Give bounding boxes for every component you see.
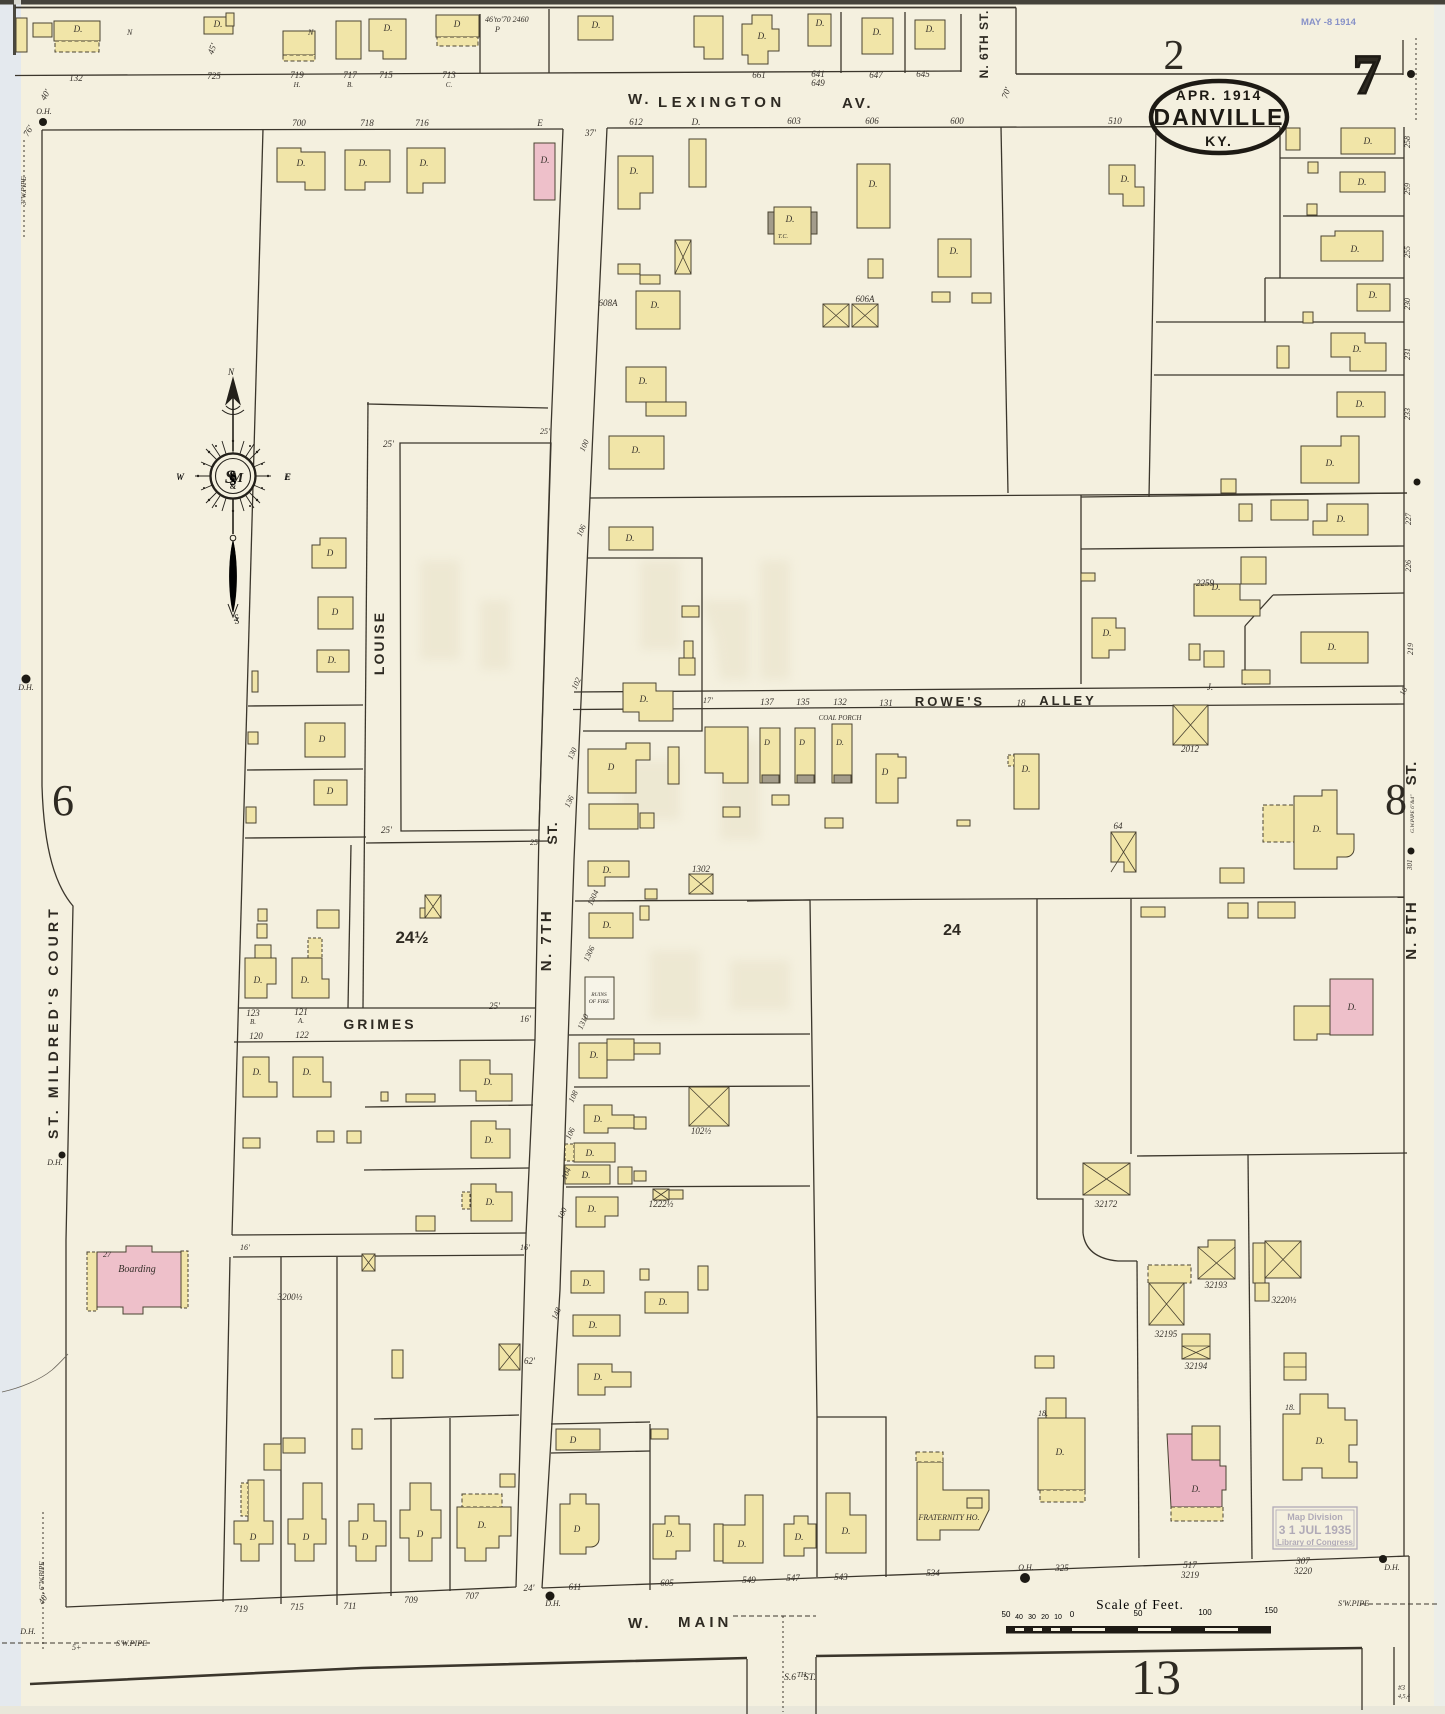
svg-text:D.: D. — [841, 1526, 851, 1536]
svg-text:MAIN: MAIN — [678, 1614, 732, 1631]
svg-text:J.: J. — [1207, 682, 1213, 692]
svg-text:1222½: 1222½ — [649, 1199, 674, 1209]
svg-text:P: P — [494, 25, 500, 34]
svg-text:D.: D. — [485, 1197, 495, 1207]
svg-text:D.: D. — [835, 738, 844, 747]
svg-text:D.: D. — [794, 1532, 804, 1542]
svg-text:D.: D. — [477, 1520, 487, 1530]
svg-text:16': 16' — [520, 1243, 530, 1252]
svg-text:17': 17' — [703, 696, 713, 705]
svg-text:D: D — [331, 607, 339, 617]
svg-text:D.: D. — [1055, 1447, 1065, 1457]
svg-text:D.: D. — [593, 1372, 603, 1382]
svg-text:517: 517 — [1183, 1560, 1197, 1570]
svg-text:62': 62' — [524, 1356, 536, 1366]
svg-text:510: 510 — [1108, 116, 1122, 126]
svg-text:D.: D. — [925, 24, 935, 34]
svg-text:18: 18 — [1017, 698, 1027, 708]
svg-text:A.: A. — [297, 1017, 304, 1025]
svg-text:D.: D. — [625, 533, 635, 543]
svg-text:661: 661 — [752, 70, 766, 80]
svg-text:25': 25' — [489, 1001, 501, 1011]
svg-text:S.6: S.6 — [784, 1673, 796, 1683]
svg-text:612: 612 — [629, 117, 643, 127]
svg-text:25': 25' — [381, 825, 393, 835]
svg-text:102½: 102½ — [691, 1126, 712, 1136]
svg-text:ALLEY: ALLEY — [1039, 693, 1097, 708]
svg-text:ROWE'S: ROWE'S — [915, 694, 985, 709]
svg-text:4,5,4: 4,5,4 — [1398, 1693, 1410, 1700]
svg-text:W.: W. — [628, 91, 652, 108]
svg-text:B.: B. — [250, 1018, 256, 1026]
svg-text:231: 231 — [1403, 348, 1412, 360]
svg-text:D: D — [607, 762, 615, 772]
svg-text:16': 16' — [240, 1243, 250, 1252]
svg-text:D.: D. — [253, 975, 263, 985]
svg-text:10: 10 — [1054, 1614, 1062, 1621]
svg-text:549: 549 — [742, 1575, 756, 1585]
svg-text:D.: D. — [1350, 244, 1360, 254]
svg-text:D.: D. — [1368, 290, 1378, 300]
svg-text:D.: D. — [691, 117, 701, 127]
svg-text:301: 301 — [1406, 860, 1414, 872]
svg-text:D: D — [326, 786, 334, 796]
svg-text:D.: D. — [581, 1170, 591, 1180]
svg-text:D.H.: D.H. — [1383, 1563, 1400, 1572]
svg-text:H.: H. — [293, 81, 301, 89]
svg-text:135: 135 — [796, 697, 810, 707]
svg-text:645: 645 — [916, 69, 930, 79]
svg-text:123: 123 — [246, 1008, 260, 1018]
svg-text:24½: 24½ — [395, 928, 428, 947]
svg-text:3200½: 3200½ — [277, 1292, 303, 1302]
svg-text:OF FIRE: OF FIRE — [589, 999, 610, 1005]
svg-text:27: 27 — [103, 1250, 112, 1259]
svg-text:543: 543 — [834, 1572, 848, 1582]
svg-text:227: 227 — [1404, 512, 1413, 525]
svg-text:25': 25' — [383, 439, 395, 449]
svg-text:3220: 3220 — [1293, 1566, 1313, 1576]
svg-text:719: 719 — [290, 70, 304, 80]
svg-text:D.: D. — [419, 158, 429, 168]
svg-text:D.: D. — [582, 1278, 592, 1288]
svg-text:2: 2 — [1164, 33, 1185, 79]
svg-text:647: 647 — [869, 70, 883, 80]
svg-text:649: 649 — [811, 78, 825, 88]
svg-text:534: 534 — [926, 1568, 940, 1578]
svg-text:G.W.PIPE 6"&4": G.W.PIPE 6"&4" — [1409, 794, 1416, 833]
svg-text:N: N — [227, 367, 235, 377]
svg-text:O.H.: O.H. — [1018, 1563, 1034, 1572]
svg-text:D.: D. — [629, 166, 639, 176]
svg-text:D.: D. — [949, 246, 959, 256]
svg-text:N: N — [307, 28, 314, 37]
svg-text:D.: D. — [815, 18, 825, 28]
svg-text:D.: D. — [1021, 764, 1031, 774]
svg-text:DANVILLE: DANVILLE — [1154, 104, 1285, 130]
svg-text:D.: D. — [587, 1204, 597, 1214]
svg-text:#3: #3 — [1398, 1684, 1406, 1692]
svg-text:D.: D. — [589, 1050, 599, 1060]
svg-text:219: 219 — [1406, 643, 1415, 655]
svg-text:D: D — [302, 1532, 310, 1542]
svg-text:325: 325 — [1054, 1563, 1069, 1573]
svg-text:150: 150 — [1264, 1606, 1278, 1615]
svg-text:120: 120 — [249, 1031, 263, 1041]
svg-text:LEXINGTON: LEXINGTON — [658, 94, 786, 111]
svg-text:§: § — [229, 468, 238, 487]
svg-text:ST. MILDRED'S COURT: ST. MILDRED'S COURT — [45, 905, 61, 1139]
svg-text:Boarding: Boarding — [118, 1264, 155, 1275]
svg-text:307: 307 — [1295, 1556, 1310, 1566]
svg-text:D.: D. — [658, 1297, 668, 1307]
svg-text:64: 64 — [1114, 821, 1124, 831]
svg-text:D.: D. — [872, 27, 882, 37]
svg-text:COAL PORCH: COAL PORCH — [819, 714, 863, 722]
svg-text:D.: D. — [757, 31, 767, 41]
svg-text:D.: D. — [585, 1148, 595, 1158]
svg-text:C.: C. — [446, 81, 453, 89]
svg-text:255: 255 — [1403, 246, 1412, 258]
svg-text:611: 611 — [569, 1582, 582, 1592]
svg-text:D.: D. — [1102, 628, 1112, 638]
svg-text:D.H.: D.H. — [46, 1158, 63, 1167]
svg-text:30: 30 — [1028, 1614, 1036, 1621]
svg-text:APR. 1914: APR. 1914 — [1176, 87, 1262, 103]
svg-text:E: E — [283, 472, 290, 482]
svg-text:600: 600 — [950, 116, 964, 126]
svg-text:D: D — [881, 767, 889, 777]
svg-text:700: 700 — [292, 118, 306, 128]
svg-text:258: 258 — [1403, 136, 1412, 148]
svg-text:D: D — [416, 1529, 424, 1539]
svg-text:13: 13 — [1131, 1649, 1181, 1705]
svg-text:N. 6TH ST.: N. 6TH ST. — [977, 10, 991, 79]
svg-text:S: S — [234, 613, 239, 623]
svg-text:D.: D. — [602, 865, 612, 875]
svg-text:6: 6 — [52, 776, 74, 825]
svg-text:5+: 5+ — [72, 1643, 81, 1652]
svg-text:18.: 18. — [1038, 1409, 1048, 1418]
svg-text:Library of Congress: Library of Congress — [1277, 1538, 1354, 1547]
svg-text:D.: D. — [650, 300, 660, 310]
svg-text:D: D — [249, 1532, 257, 1542]
svg-text:6"W.PIPE: 6"W.PIPE — [38, 1561, 46, 1590]
svg-text:40: 40 — [1015, 1614, 1023, 1621]
svg-text:259: 259 — [1403, 183, 1412, 195]
svg-text:N: N — [126, 28, 133, 37]
svg-text:233: 233 — [1403, 408, 1412, 420]
svg-text:RUINS: RUINS — [590, 992, 607, 998]
svg-text:AV.: AV. — [842, 95, 874, 112]
svg-text:709: 709 — [404, 1595, 418, 1605]
svg-text:D: D — [798, 738, 805, 747]
svg-text:32193: 32193 — [1204, 1280, 1228, 1290]
svg-text:D.: D. — [383, 23, 393, 33]
svg-text:716: 716 — [415, 118, 429, 128]
svg-text:E: E — [536, 118, 543, 128]
svg-text:Map Division: Map Division — [1287, 1512, 1343, 1522]
svg-text:1302: 1302 — [692, 864, 711, 874]
svg-text:GRIMES: GRIMES — [343, 1016, 416, 1032]
svg-text:25': 25' — [530, 838, 540, 847]
svg-text:100: 100 — [1198, 1608, 1212, 1617]
svg-text:3220½: 3220½ — [1271, 1295, 1297, 1305]
svg-text:32195: 32195 — [1154, 1329, 1178, 1339]
svg-text:D.: D. — [737, 1539, 747, 1549]
svg-text:137: 137 — [760, 697, 774, 707]
svg-text:D.: D. — [300, 975, 310, 985]
svg-text:717: 717 — [343, 70, 357, 80]
svg-text:122: 122 — [295, 1030, 309, 1040]
svg-text:D.: D. — [296, 158, 306, 168]
svg-text:T.C.: T.C. — [778, 234, 788, 240]
svg-text:50: 50 — [1002, 1610, 1011, 1619]
svg-text:608A: 608A — [599, 298, 619, 308]
svg-text:B.: B. — [347, 81, 353, 89]
svg-text:D.: D. — [1355, 399, 1365, 409]
svg-text:D.: D. — [1357, 177, 1367, 187]
svg-text:D: D — [361, 1532, 369, 1542]
svg-text:D.: D. — [1191, 1484, 1201, 1494]
svg-text:D.: D. — [588, 1320, 598, 1330]
svg-text:D: D — [318, 734, 326, 744]
svg-text:D.: D. — [1336, 514, 1346, 524]
svg-text:0: 0 — [1070, 1610, 1075, 1619]
svg-text:3219: 3219 — [1180, 1570, 1200, 1580]
svg-text:713: 713 — [442, 70, 456, 80]
svg-text:LOUISE: LOUISE — [371, 611, 387, 675]
svg-text:46'to'70 2460: 46'to'70 2460 — [485, 15, 529, 24]
svg-text:18.: 18. — [1285, 1403, 1295, 1412]
svg-text:25': 25' — [540, 427, 550, 436]
svg-text:D.: D. — [1325, 458, 1335, 468]
svg-text:D.: D. — [665, 1529, 675, 1539]
svg-text:D.: D. — [213, 19, 223, 29]
svg-text:D.H.: D.H. — [19, 1627, 36, 1636]
svg-text:711: 711 — [344, 1601, 357, 1611]
svg-text:20: 20 — [1041, 1614, 1049, 1621]
svg-text:D: D — [573, 1524, 581, 1534]
svg-text:D.: D. — [540, 155, 550, 165]
svg-text:D.: D. — [1352, 344, 1362, 354]
svg-text:D.: D. — [602, 920, 612, 930]
svg-text:N. 5TH: N. 5TH — [1403, 900, 1420, 960]
svg-text:D.H.: D.H. — [544, 1599, 561, 1608]
svg-text:603: 603 — [787, 116, 801, 126]
svg-text:D.: D. — [302, 1067, 312, 1077]
svg-text:D.: D. — [358, 158, 368, 168]
svg-text:547: 547 — [786, 1573, 800, 1583]
svg-text:32194: 32194 — [1184, 1361, 1208, 1371]
svg-text:D.: D. — [1327, 642, 1337, 652]
svg-text:D: D — [569, 1435, 577, 1445]
svg-text:D.H.: D.H. — [17, 683, 34, 692]
svg-text:50: 50 — [1134, 1609, 1143, 1618]
svg-text:MAY -8 1914: MAY -8 1914 — [1301, 17, 1357, 28]
svg-text:D.: D. — [1347, 1002, 1357, 1012]
svg-text:D: D — [453, 19, 461, 29]
svg-text:D.: D. — [483, 1077, 493, 1087]
svg-text:718: 718 — [360, 118, 374, 128]
svg-text:D.: D. — [484, 1135, 494, 1145]
svg-text:707: 707 — [465, 1591, 479, 1601]
svg-text:KY.: KY. — [1205, 133, 1233, 149]
svg-text:715: 715 — [379, 70, 393, 80]
svg-text:37': 37' — [584, 128, 597, 138]
svg-text:131: 131 — [879, 698, 893, 708]
svg-text:719: 719 — [234, 1604, 248, 1614]
svg-text:D.: D. — [631, 445, 641, 455]
svg-text:ST.: ST. — [544, 821, 560, 844]
svg-text:D.: D. — [1363, 136, 1373, 146]
svg-text:16': 16' — [520, 1014, 532, 1024]
svg-text:D.: D. — [1120, 174, 1130, 184]
svg-text:7: 7 — [1353, 44, 1381, 106]
svg-text:226: 226 — [1404, 560, 1413, 572]
svg-text:3 1 JUL 1935: 3 1 JUL 1935 — [1279, 1523, 1352, 1537]
svg-text:132: 132 — [69, 73, 83, 83]
svg-text:606: 606 — [865, 116, 879, 126]
svg-text:FRATERNITY HO.: FRATERNITY HO. — [917, 1513, 979, 1522]
svg-text:D: D — [326, 548, 334, 558]
svg-text:D: D — [763, 738, 770, 747]
svg-text:725: 725 — [207, 71, 221, 81]
svg-text:O.H.: O.H. — [36, 107, 52, 116]
svg-text:24: 24 — [943, 922, 961, 939]
svg-text:230: 230 — [1403, 298, 1412, 310]
svg-text:32172: 32172 — [1094, 1199, 1118, 1209]
svg-text:D.: D. — [1211, 582, 1221, 592]
svg-text:D.: D. — [638, 376, 648, 386]
svg-text:2012: 2012 — [1181, 744, 1200, 754]
svg-text:D.: D. — [1315, 1436, 1325, 1446]
svg-text:D.: D. — [591, 20, 601, 30]
svg-text:W.: W. — [628, 1615, 652, 1632]
svg-text:D.: D. — [1312, 824, 1322, 834]
svg-text:N. 7TH: N. 7TH — [538, 909, 555, 972]
svg-text:D.: D. — [252, 1067, 262, 1077]
svg-text:D.: D. — [639, 694, 649, 704]
svg-text:605: 605 — [660, 1578, 674, 1588]
svg-text:D.: D. — [868, 179, 878, 189]
svg-text:D.: D. — [593, 1114, 603, 1124]
svg-text:121: 121 — [294, 1007, 308, 1017]
svg-text:132: 132 — [833, 697, 847, 707]
svg-text:ST.: ST. — [804, 1673, 816, 1683]
svg-text:24': 24' — [524, 1583, 536, 1593]
svg-text:D.: D. — [785, 214, 795, 224]
svg-text:D.: D. — [73, 24, 83, 34]
svg-text:606A: 606A — [856, 294, 876, 304]
svg-text:D.: D. — [327, 655, 337, 665]
svg-text:715: 715 — [290, 1602, 304, 1612]
svg-text:8: 8 — [1385, 775, 1407, 824]
